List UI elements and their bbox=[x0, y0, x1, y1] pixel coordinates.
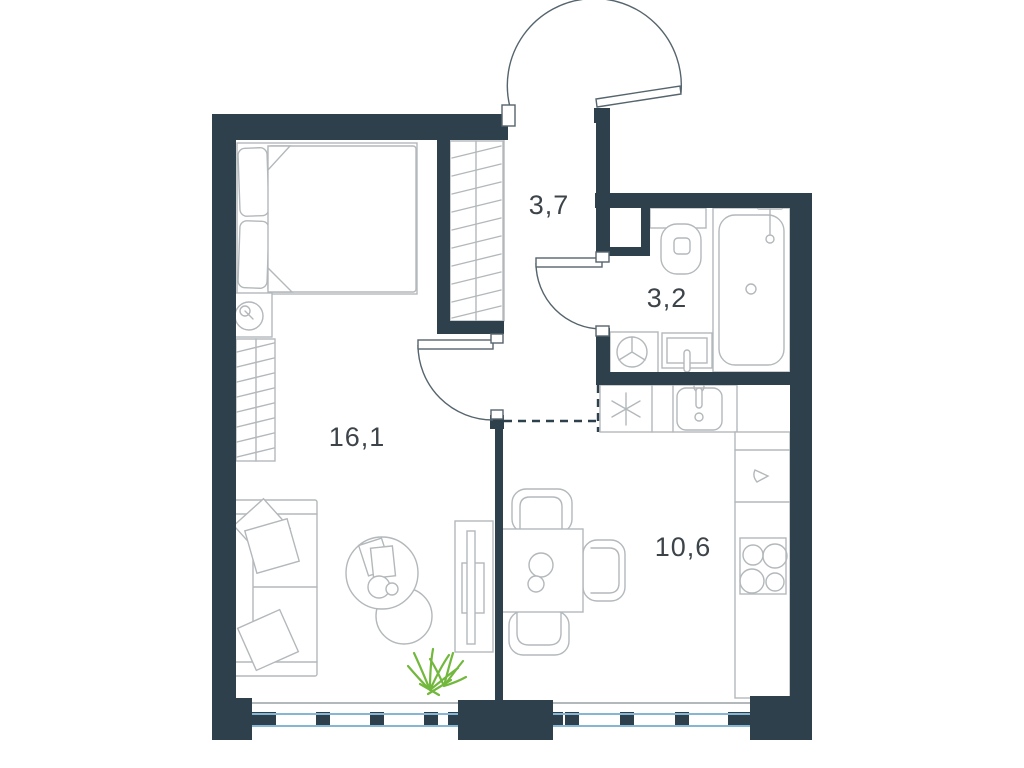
sink-tap-spout bbox=[696, 388, 702, 408]
chair-icon bbox=[509, 611, 569, 655]
wall-living-kitchen bbox=[495, 425, 503, 700]
cup bbox=[386, 583, 398, 595]
toilet-icon bbox=[661, 224, 701, 274]
floor-plan-canvas: 16,1 3,7 3,2 10,6 bbox=[0, 0, 1024, 768]
bathroom-door-icon bbox=[536, 252, 609, 336]
living-room-door-icon bbox=[418, 334, 503, 420]
pillow-icon bbox=[238, 147, 269, 216]
wall-closet-bottom bbox=[437, 321, 504, 334]
wall-top bbox=[212, 114, 508, 140]
bathtub bbox=[713, 208, 790, 372]
hallway-area-label: 3,7 bbox=[529, 190, 570, 220]
kitchen-zone-dashed-line bbox=[504, 385, 598, 432]
coffee-table-group bbox=[346, 537, 432, 644]
pier-bottom-left bbox=[212, 698, 252, 740]
bathroom-area-label: 3,2 bbox=[647, 283, 688, 313]
door-leaf bbox=[536, 258, 602, 267]
entrance-hinge-block bbox=[594, 108, 608, 123]
door-swing-arc bbox=[418, 345, 493, 420]
closet-hall bbox=[450, 141, 503, 321]
pillow-icon bbox=[238, 221, 269, 289]
furniture-layer bbox=[229, 140, 790, 698]
wall-bathroom-top bbox=[595, 193, 812, 208]
door-swing-arc bbox=[536, 263, 602, 329]
wall-right bbox=[790, 193, 812, 740]
door-jamb bbox=[502, 105, 515, 126]
floor-plan: 16,1 3,7 3,2 10,6 bbox=[0, 0, 1024, 768]
double-bed bbox=[237, 143, 417, 294]
wall-left bbox=[212, 114, 236, 704]
pier-bottom-middle bbox=[458, 700, 553, 740]
door-jamb bbox=[596, 326, 609, 336]
potted-plant-icon bbox=[408, 649, 466, 695]
wall-bathroom-bottom bbox=[596, 372, 790, 385]
bathroom-fixtures bbox=[610, 201, 790, 373]
wall-hall-right bbox=[596, 108, 610, 256]
table-lamp-icon bbox=[235, 302, 263, 330]
plate bbox=[529, 553, 553, 577]
tv-screen-icon bbox=[467, 531, 475, 644]
entrance-door-icon bbox=[502, 0, 681, 126]
living-room-area-label: 16,1 bbox=[329, 422, 386, 452]
door-jamb bbox=[596, 252, 609, 262]
chair-icon bbox=[512, 489, 572, 533]
dining-set bbox=[498, 489, 625, 655]
pier-bottom-right bbox=[750, 696, 812, 740]
plant-leaves bbox=[420, 680, 451, 695]
door-leaf bbox=[418, 340, 493, 349]
door-leaf bbox=[596, 86, 681, 107]
duvet bbox=[268, 146, 416, 292]
sofa bbox=[231, 499, 317, 676]
kitchen-window bbox=[553, 714, 750, 726]
tv-stand bbox=[455, 521, 493, 652]
kitchen-area-label: 10,6 bbox=[655, 532, 712, 562]
wardrobe-left bbox=[236, 339, 275, 461]
door-jamb bbox=[491, 410, 503, 419]
door-jamb bbox=[491, 334, 503, 343]
basin-tap bbox=[684, 350, 690, 372]
wall-closet-left bbox=[437, 140, 450, 325]
cup bbox=[528, 576, 544, 592]
book bbox=[370, 546, 395, 578]
